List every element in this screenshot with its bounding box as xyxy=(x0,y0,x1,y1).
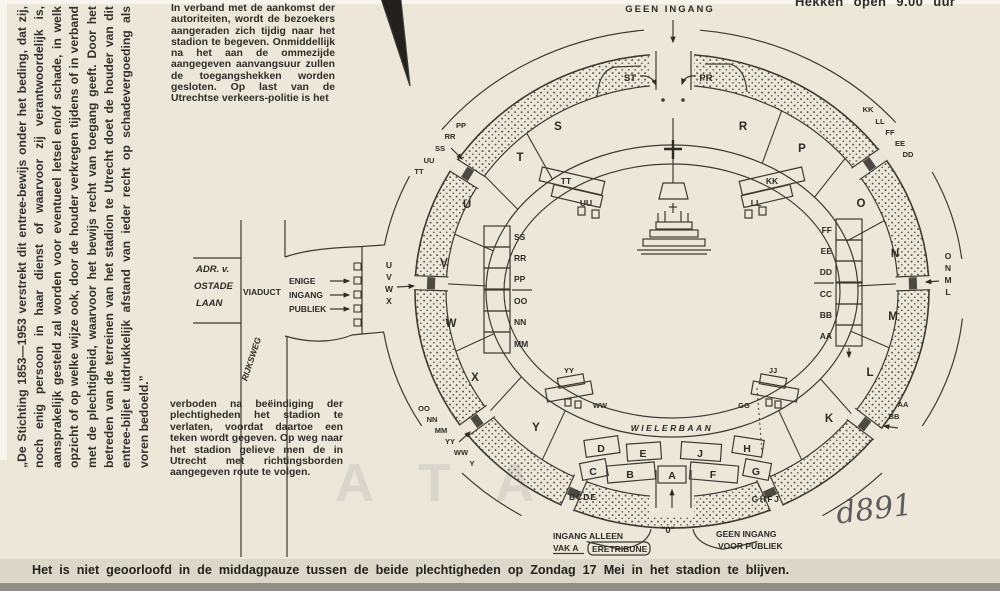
footer-notice: Het is niet geoorloofd in de middagpauze… xyxy=(32,563,789,577)
gate-ghfj-label: GHFJ xyxy=(752,494,781,504)
notice-paragraph-bottom: verboden na beëindiging der plechtighede… xyxy=(170,399,343,479)
section-letter: N xyxy=(891,248,899,260)
stand-label-uu: UU xyxy=(580,198,592,208)
row-label: MM xyxy=(514,339,528,349)
row-label: SS xyxy=(514,232,526,242)
section-letter: U xyxy=(463,199,471,211)
gate-stack-label: U xyxy=(386,260,392,270)
gate-stack-label: NN xyxy=(427,415,438,424)
street-label: LAAN xyxy=(196,298,224,309)
section-letter: K xyxy=(825,413,834,425)
section-letter: B xyxy=(626,469,634,481)
gate-stack-label: W xyxy=(385,284,394,294)
voor-publiek-label: VOOR PUBLIEK xyxy=(718,541,784,551)
section-letter: P xyxy=(798,143,806,155)
row-label: FF xyxy=(822,225,832,235)
gate-stack-label: KK xyxy=(863,105,874,114)
gate-stack-label: O xyxy=(945,251,952,261)
stand-label-ll: LL xyxy=(751,198,761,208)
section-letter: V xyxy=(440,258,448,270)
entrance-label: INGANG xyxy=(289,290,323,300)
section-letter: L xyxy=(866,367,873,379)
gate-stack-label: UU xyxy=(424,156,435,165)
promenade-ring xyxy=(415,54,929,528)
gate-stack-label: TT xyxy=(414,167,424,176)
row-label: AA xyxy=(820,331,832,341)
gate-stack-label: FF xyxy=(885,128,895,137)
entrance-label: PUBLIEK xyxy=(289,304,327,314)
gate-stack-label: OO xyxy=(418,404,430,413)
section-letter: W xyxy=(446,318,457,330)
gate-stack-label: X xyxy=(386,296,392,306)
row-label: NN xyxy=(514,317,526,327)
north-corridor xyxy=(650,48,694,102)
stand-sw: YY WW xyxy=(545,366,608,410)
stand-label-yy: YY xyxy=(564,366,574,375)
gate-stack-label: PP xyxy=(456,121,466,130)
row-label: RR xyxy=(514,253,526,263)
gate-stack-label: DD xyxy=(903,150,914,159)
gate-stack-label: SS xyxy=(435,144,445,153)
gate-bcde-label: BCDE xyxy=(569,492,597,502)
section-letter: H xyxy=(743,443,751,455)
rijksweg-label: RIJKSWEG xyxy=(239,336,263,383)
stand-se: JJ GG xyxy=(738,366,799,452)
bottom-sections: D E J H C B A F G xyxy=(580,436,772,483)
wielerbaan-label: WIELERBAAN xyxy=(631,423,714,433)
gate-stack-label: L xyxy=(945,287,950,297)
gate-stack-label: BB xyxy=(889,412,900,421)
stand-label-kk: KK xyxy=(766,176,779,186)
gate-stack-label: N xyxy=(945,263,951,273)
east-stand-rows: FF EE DD CC BB AA xyxy=(814,219,862,357)
section-letter: G xyxy=(752,466,760,478)
gate-stack-label: M xyxy=(944,275,951,285)
gate-pr-label: PR xyxy=(699,73,712,84)
e retribune-entrance-labels: "0" INGANG ALLEEN VAK A ERETRIBUNE GEEN … xyxy=(553,525,784,555)
section-letter: M xyxy=(888,311,898,323)
section-dividers xyxy=(446,111,898,460)
gate-st-label: ST xyxy=(624,73,636,84)
footer-bar: Het is niet geoorloofd in de middagpauze… xyxy=(0,559,1000,583)
ring-section-letters: S T U V W X Y R P O N M L K xyxy=(440,121,899,434)
row-label: EE xyxy=(821,246,833,256)
ingang-alleen-label: INGANG ALLEEN xyxy=(553,531,623,541)
notice-paragraph-top: In verband met de aankomst der autoritei… xyxy=(171,3,335,105)
section-letter: F xyxy=(710,469,717,481)
row-label: BB xyxy=(820,310,832,320)
section-letter: A xyxy=(668,470,676,482)
entrance-label: ENIGE xyxy=(289,276,316,286)
stand-nw: TT UU xyxy=(539,167,605,218)
section-letter: Y xyxy=(532,422,540,434)
section-letter: T xyxy=(516,152,523,164)
rotated-disclaimer-text: „De Stichting 1853—1953 verstrekt dit en… xyxy=(14,6,156,468)
gate-stack-label: WW xyxy=(454,448,469,457)
central-monument xyxy=(637,118,711,254)
compass-needle xyxy=(377,0,410,86)
gates-open-note: Hekken open 9.00 uur xyxy=(795,0,955,9)
section-letter: X xyxy=(471,372,479,384)
row-label: OO xyxy=(514,296,528,306)
stand-label-tt: TT xyxy=(561,176,572,186)
row-label: PP xyxy=(514,274,526,284)
row-label: CC xyxy=(820,289,832,299)
viaduct-label: VIADUCT xyxy=(243,287,282,297)
track-outer-edge xyxy=(486,145,858,437)
west-stand-rows: SS RR PP OO NN MM xyxy=(484,226,532,353)
section-letter: S xyxy=(554,121,562,133)
section-letter: D xyxy=(597,443,605,455)
gate-stack-label: EE xyxy=(895,139,905,148)
scan-edge-bottom xyxy=(0,583,1000,591)
field-edge xyxy=(504,164,840,418)
street-label: OSTADE xyxy=(194,281,234,292)
gate-stack-label: YY xyxy=(445,437,455,446)
section-letter: R xyxy=(739,121,748,133)
scanned-ticket-page: ATA xyxy=(0,0,1000,591)
gate-stack-label: RR xyxy=(445,132,456,141)
gate-stack-label: MM xyxy=(435,426,448,435)
gate-zero-label: "0" xyxy=(661,525,675,536)
section-letter: E xyxy=(639,448,646,460)
stand-label-ww: WW xyxy=(593,401,608,410)
section-letter: J xyxy=(697,448,703,460)
eretribune-label: ERETRIBUNE xyxy=(592,544,648,554)
gate-stack-label: V xyxy=(386,272,392,282)
gate-stack-label: AA xyxy=(898,400,909,409)
gate-stack-west: U V W X xyxy=(385,260,414,306)
stand-ne: KK LL xyxy=(739,167,805,218)
geen-ingang-top-label: GEEN INGANG xyxy=(625,4,715,15)
section-letter: O xyxy=(857,198,866,210)
gate-stack-label: LL xyxy=(875,117,885,126)
row-label: DD xyxy=(820,267,832,277)
vak-a-label: VAK A xyxy=(553,543,579,553)
stand-label-jj: JJ xyxy=(769,366,777,375)
section-letter: C xyxy=(589,466,597,478)
street-label: ADR. v. xyxy=(195,264,229,275)
entrance-turnstiles xyxy=(354,263,361,326)
stand-label-gg: GG xyxy=(738,401,750,410)
geen-ingang-bottom-label: GEEN INGANG xyxy=(716,529,777,539)
gate-stack-label: Y xyxy=(469,459,474,468)
